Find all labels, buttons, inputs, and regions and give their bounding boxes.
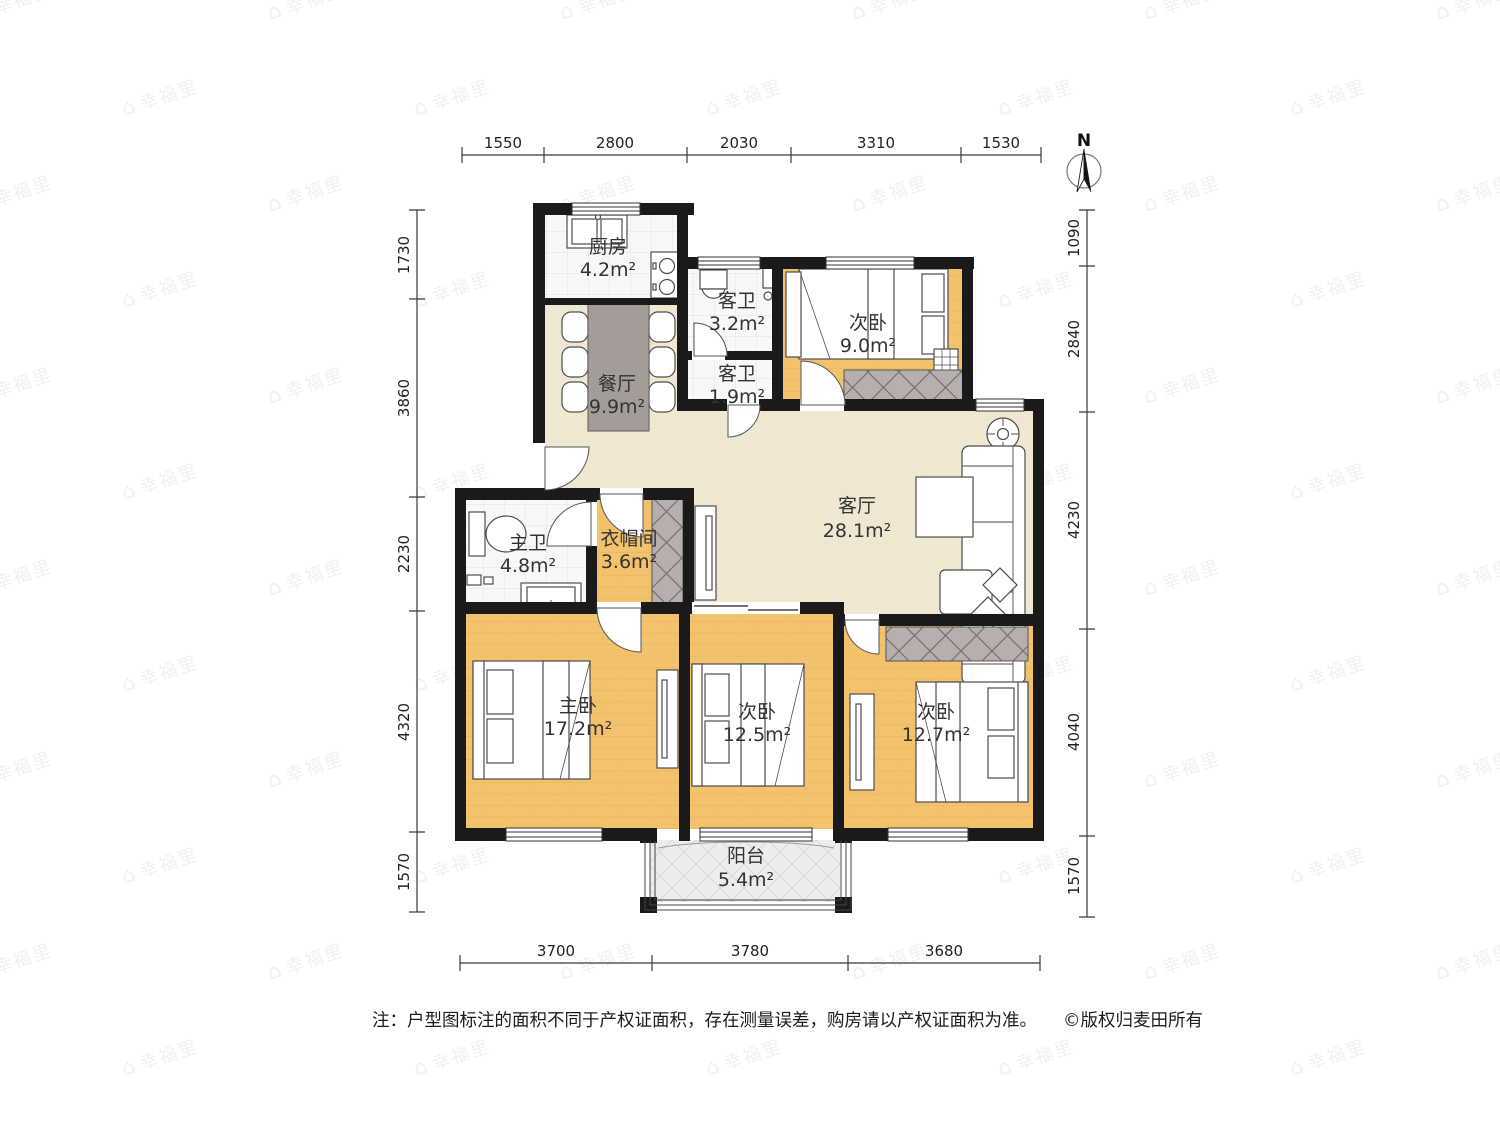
svg-text:12.7m²: 12.7m² (902, 724, 970, 746)
tv-icon (662, 680, 667, 758)
svg-text:9.0m²: 9.0m² (840, 335, 896, 357)
svg-text:2230: 2230 (395, 535, 413, 573)
window (826, 257, 914, 269)
coffee-table-icon (916, 477, 973, 537)
svg-text:厨房: 厨房 (589, 236, 627, 258)
svg-text:次卧: 次卧 (738, 701, 776, 723)
faucet-icon (467, 575, 493, 585)
svg-text:1730: 1730 (395, 236, 413, 274)
washing-machine-icon (987, 418, 1019, 450)
disclaimer-text: 注：户型图标注的面积不同于产权证面积，存在测量误差，购房请以产权证面积为准。 (372, 1007, 1037, 1032)
svg-text:2800: 2800 (596, 134, 634, 152)
svg-text:阳台: 阳台 (727, 845, 765, 867)
svg-text:1530: 1530 (982, 134, 1020, 152)
svg-text:3310: 3310 (857, 134, 895, 152)
svg-text:3860: 3860 (395, 379, 413, 417)
svg-text:4230: 4230 (1065, 501, 1083, 539)
svg-text:N: N (1077, 131, 1091, 151)
svg-text:主卫: 主卫 (509, 532, 547, 554)
nightstand-icon (934, 349, 958, 373)
floorplan-page: ⌂幸福里⌂幸福里⌂幸福里⌂幸福里⌂幸福里⌂幸福里⌂幸福里⌂幸福里⌂幸福里⌂幸福里… (0, 0, 1500, 1125)
svg-text:3680: 3680 (925, 942, 963, 960)
svg-text:4320: 4320 (395, 703, 413, 741)
svg-text:4040: 4040 (1065, 713, 1083, 751)
tv-cabinet-icon (695, 506, 716, 600)
svg-text:2030: 2030 (720, 134, 758, 152)
svg-text:1550: 1550 (484, 134, 522, 152)
svg-text:4.2m²: 4.2m² (580, 259, 636, 281)
svg-text:客卫: 客卫 (718, 363, 756, 385)
window (700, 828, 812, 841)
footer-note: 注：户型图标注的面积不同于产权证面积，存在测量误差，购房请以产权证面积为准。 ©… (372, 1007, 1162, 1032)
svg-text:12.5m²: 12.5m² (723, 724, 791, 746)
svg-text:次卧: 次卧 (917, 701, 955, 723)
svg-text:客厅: 客厅 (838, 495, 876, 517)
window (888, 828, 968, 841)
svg-text:餐厅: 餐厅 (598, 373, 636, 395)
svg-text:9.9m²: 9.9m² (589, 396, 645, 418)
svg-text:28.1m²: 28.1m² (823, 520, 891, 542)
north-arrow-icon: N (1067, 131, 1101, 192)
svg-text:4.8m²: 4.8m² (500, 555, 556, 577)
svg-text:1090: 1090 (1065, 219, 1083, 257)
dresser-icon (850, 694, 874, 790)
svg-text:3.2m²: 3.2m² (709, 313, 765, 335)
copyright-text: ©版权归麦田所有 (1063, 1007, 1203, 1032)
svg-text:1570: 1570 (395, 853, 413, 891)
svg-text:17.2m²: 17.2m² (544, 718, 612, 740)
wardrobe-icon (844, 370, 963, 400)
svg-text:次卧: 次卧 (849, 312, 887, 334)
tv-icon (856, 704, 861, 780)
room-label: 衣帽间3.6m² (600, 528, 657, 573)
window (506, 828, 602, 841)
window (572, 203, 640, 215)
svg-text:3780: 3780 (731, 942, 769, 960)
window (976, 399, 1024, 411)
svg-text:客卫: 客卫 (718, 290, 756, 312)
svg-text:主卧: 主卧 (559, 695, 597, 717)
svg-text:衣帽间: 衣帽间 (600, 528, 657, 550)
svg-text:3.6m²: 3.6m² (601, 551, 657, 573)
wardrobe-icon (886, 627, 1028, 661)
svg-text:2840: 2840 (1065, 320, 1083, 358)
dresser-icon (786, 272, 801, 357)
svg-text:1.9m²: 1.9m² (709, 386, 765, 408)
svg-text:3700: 3700 (537, 942, 575, 960)
svg-text:1570: 1570 (1065, 857, 1083, 895)
floor-plan: 厨房4.2m² 餐厅9.9m² 客卫3.2m² 客卫1.9m² 次卧9.0m² … (0, 0, 1500, 1125)
svg-text:5.4m²: 5.4m² (718, 869, 774, 891)
window (698, 257, 760, 269)
